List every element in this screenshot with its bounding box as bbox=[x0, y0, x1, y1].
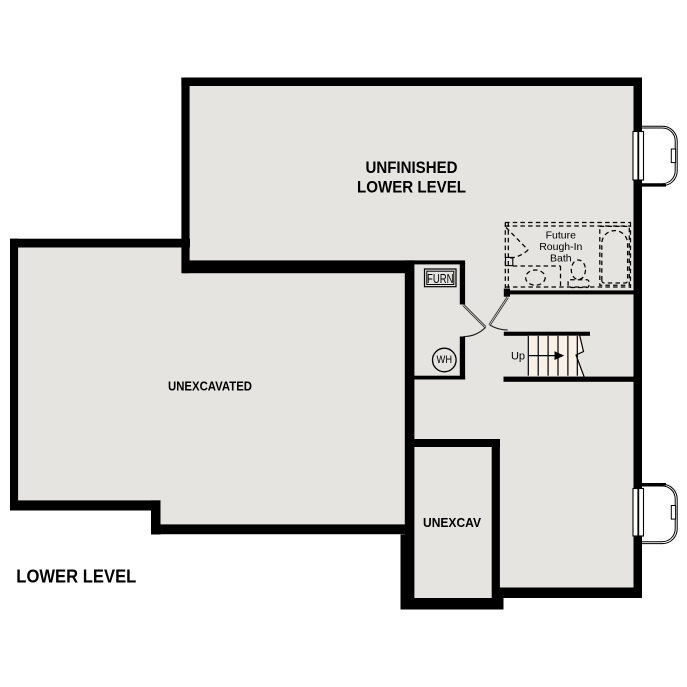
svg-text:Up: Up bbox=[511, 351, 525, 363]
svg-text:LOWER LEVEL: LOWER LEVEL bbox=[357, 179, 466, 197]
svg-text:UNEXCAV: UNEXCAV bbox=[423, 515, 481, 530]
svg-text:UNEXCAVATED: UNEXCAVATED bbox=[168, 379, 252, 394]
svg-text:Future: Future bbox=[546, 230, 577, 242]
svg-text:WH: WH bbox=[437, 354, 453, 366]
svg-text:Rough-In: Rough-In bbox=[539, 241, 582, 253]
svg-text:LOWER LEVEL: LOWER LEVEL bbox=[16, 567, 136, 587]
svg-text:UNFINISHED: UNFINISHED bbox=[366, 159, 458, 177]
svg-text:Bath: Bath bbox=[550, 253, 572, 265]
svg-text:FURN: FURN bbox=[427, 271, 454, 286]
